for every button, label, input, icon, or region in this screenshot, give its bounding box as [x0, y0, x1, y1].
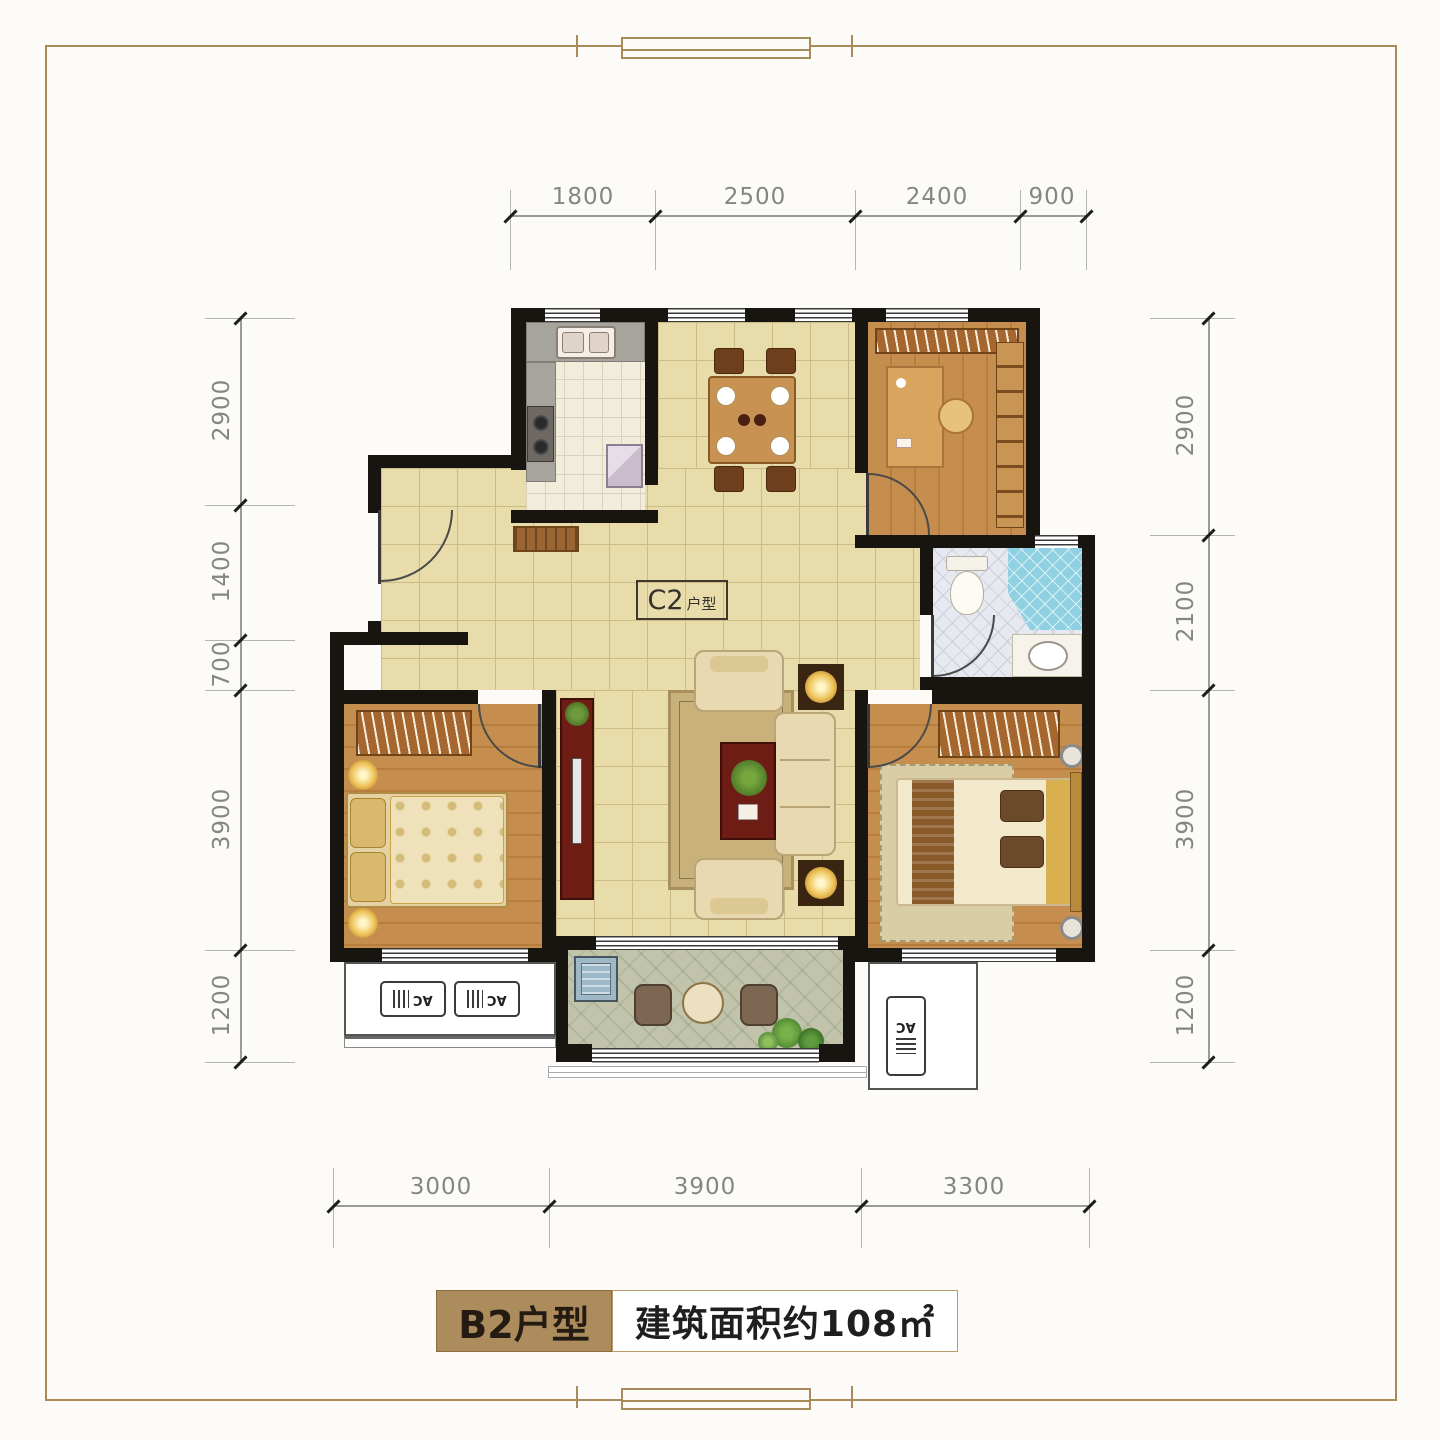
bathroom-door-leaf [931, 615, 934, 677]
nightstand-lamp [348, 760, 378, 790]
dim-label: 2400 [906, 184, 969, 210]
refrigerator-icon [606, 444, 643, 488]
desk-chair [938, 398, 974, 434]
plan-unit-label: C2 户型 [636, 580, 728, 620]
frame-tick-icon [576, 1386, 578, 1408]
plant-icon [565, 702, 589, 726]
nightstand-lamp [348, 908, 378, 938]
bookshelf [996, 342, 1024, 528]
wall-segment [855, 308, 868, 473]
washing-machine-icon [574, 956, 618, 1002]
dim-label: 2900 [209, 365, 235, 455]
dining-chair [766, 466, 796, 492]
wall-segment [556, 936, 596, 950]
coffee-table [720, 742, 776, 840]
balcony-chair [634, 984, 672, 1026]
title-unit-name: B2户型 [458, 1294, 589, 1349]
ac-platform-left: AC AC [344, 962, 556, 1036]
dining-chair [714, 348, 744, 374]
plan-unit-label-main: C2 [647, 585, 683, 616]
dim-label: 2900 [1173, 380, 1199, 470]
title-unit-badge: B2户型 [436, 1290, 612, 1352]
desk [886, 366, 944, 468]
dim-label: 3900 [1173, 774, 1199, 864]
wardrobe [938, 710, 1060, 758]
wall-segment [645, 308, 658, 485]
dining-chair [766, 348, 796, 374]
wall-segment [1026, 308, 1040, 548]
title-area-text: 建筑面积约108㎡ [635, 1295, 935, 1347]
wall-segment [344, 690, 478, 704]
nightstand [1060, 744, 1084, 768]
window [382, 948, 528, 962]
bedroom-right-door-leaf [867, 704, 870, 768]
frame-ornament-bar [621, 37, 811, 59]
dim-label: 3300 [943, 1174, 1006, 1200]
pillow [1000, 790, 1044, 822]
dim-label: 1200 [1173, 960, 1199, 1050]
dim-label: 3900 [674, 1174, 737, 1200]
wall-segment [932, 690, 1095, 704]
ac-unit-label: AC [896, 1019, 916, 1034]
frame-tick-icon [851, 1386, 853, 1408]
balcony-chair [740, 984, 778, 1026]
bed-double [346, 792, 508, 908]
side-table-lamp [798, 860, 844, 906]
wall-segment [556, 1044, 592, 1062]
wardrobe [356, 710, 472, 756]
toilet-icon [946, 556, 988, 571]
balcony-outer-sill [548, 1066, 867, 1078]
ac-unit-label: AC [413, 992, 433, 1007]
dining-chair [714, 466, 744, 492]
wall-segment [511, 308, 526, 470]
wall-segment [368, 455, 526, 468]
tv-cabinet [560, 698, 594, 900]
bed-double [896, 778, 1076, 906]
bed-runner [912, 780, 954, 904]
plan-unit-label-sub: 户型 [687, 593, 717, 614]
wall-segment [528, 948, 556, 962]
ac-platform-right: AC [868, 962, 978, 1090]
floorplan-page: 1800 2500 2400 900 2900 1400 700 3900 12… [0, 0, 1440, 1440]
window [1035, 535, 1078, 548]
pillow [1000, 836, 1044, 868]
balcony-table [682, 982, 724, 1024]
dim-label: 2100 [1173, 566, 1199, 656]
tv-icon [572, 758, 582, 844]
study-door-leaf [866, 473, 869, 535]
plant-icon [731, 760, 767, 796]
wall-segment [542, 690, 556, 962]
wall-segment [868, 948, 902, 962]
dining-table [708, 376, 796, 464]
duvet [390, 796, 504, 904]
balcony-door-window [596, 936, 838, 950]
stove-icon [527, 406, 554, 462]
window [886, 308, 968, 322]
armchair [694, 650, 784, 712]
headboard [1070, 772, 1082, 912]
pillow [350, 852, 386, 902]
balcony-railing [592, 1048, 819, 1064]
toilet-icon [950, 571, 984, 615]
hallway-floor [381, 468, 920, 690]
wall-segment [330, 632, 344, 962]
dim-label: 1800 [552, 184, 615, 210]
ac-unit-icon: AC [454, 981, 520, 1017]
dim-label: 2500 [724, 184, 787, 210]
frame-ornament-line [623, 1400, 809, 1402]
bathroom-vanity [1012, 634, 1082, 677]
frame-tick-icon [576, 35, 578, 57]
kitchen-sink-icon [556, 326, 616, 359]
window [795, 308, 852, 322]
dim-label: 3000 [410, 1174, 473, 1200]
ac-platform-sill [344, 1036, 556, 1048]
wall-segment [855, 535, 1026, 548]
entry-door-leaf [378, 510, 381, 584]
side-table-lamp [798, 664, 844, 710]
shoe-cabinet [513, 526, 579, 552]
wall-segment [920, 535, 933, 615]
wall-segment [1082, 535, 1095, 962]
frame-ornament-line [623, 49, 809, 51]
frame-tick-icon [851, 35, 853, 57]
sofa [774, 712, 836, 856]
window [902, 948, 1056, 962]
armchair [694, 858, 784, 920]
dim-label: 1400 [209, 526, 235, 616]
wall-segment [838, 936, 855, 950]
wall-segment [511, 510, 658, 523]
wall-segment [819, 1044, 855, 1062]
ac-unit-label: AC [487, 992, 507, 1007]
window [668, 308, 745, 322]
pillow [350, 798, 386, 848]
wall-segment [368, 455, 381, 513]
wall-segment [330, 632, 468, 645]
title-area-box: 建筑面积约108㎡ [612, 1290, 958, 1352]
dim-label: 3900 [209, 774, 235, 864]
wall-segment [920, 677, 1095, 690]
frame-ornament-bar [621, 1388, 811, 1410]
window [545, 308, 600, 322]
nightstand [1060, 916, 1084, 940]
ac-unit-icon: AC [380, 981, 446, 1017]
dim-label: 1200 [209, 960, 235, 1050]
dim-label: 700 [209, 619, 235, 709]
wall-segment [1056, 948, 1095, 962]
dim-label: 900 [1029, 184, 1076, 210]
wall-segment [330, 948, 382, 962]
bedroom-left-door-leaf [538, 704, 541, 768]
ac-unit-icon: AC [886, 996, 926, 1076]
